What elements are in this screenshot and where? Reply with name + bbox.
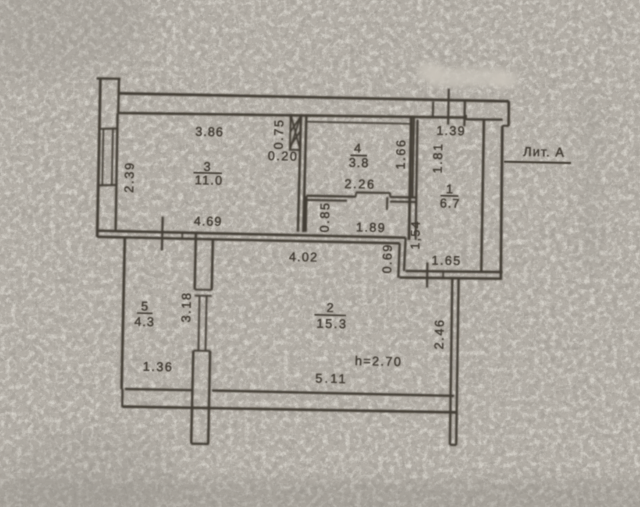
svg-text:15.3: 15.3 <box>316 317 347 332</box>
svg-text:1.81: 1.81 <box>431 142 446 173</box>
svg-text:2.39: 2.39 <box>122 161 137 193</box>
svg-text:3.18: 3.18 <box>179 291 194 322</box>
svg-text:h=2.70: h=2.70 <box>355 354 403 369</box>
svg-text:1: 1 <box>446 182 453 196</box>
svg-text:1.65: 1.65 <box>431 253 461 268</box>
svg-text:3: 3 <box>203 160 210 174</box>
svg-text:1.89: 1.89 <box>356 220 386 235</box>
svg-text:1.66: 1.66 <box>394 138 409 169</box>
svg-text:1.39: 1.39 <box>436 124 466 139</box>
svg-text:1,54: 1,54 <box>408 220 423 250</box>
svg-text:2.46: 2.46 <box>432 318 447 349</box>
svg-text:2: 2 <box>326 301 333 315</box>
svg-text:Лит. А: Лит. А <box>523 144 565 160</box>
svg-text:0.85: 0.85 <box>318 201 333 232</box>
svg-text:4.69: 4.69 <box>194 214 223 229</box>
svg-text:11.0: 11.0 <box>195 173 224 188</box>
svg-text:0.69: 0.69 <box>380 243 395 273</box>
svg-text:4: 4 <box>354 141 361 155</box>
svg-text:3.86: 3.86 <box>195 125 224 140</box>
svg-text:5.11: 5.11 <box>315 371 348 386</box>
svg-text:5: 5 <box>141 299 148 313</box>
svg-text:0.20: 0.20 <box>268 149 299 164</box>
svg-text:6.7: 6.7 <box>440 196 461 210</box>
svg-text:2.26: 2.26 <box>344 177 376 192</box>
svg-text:4.02: 4.02 <box>289 250 319 265</box>
svg-text:1.36: 1.36 <box>143 360 174 375</box>
svg-text:0.75: 0.75 <box>272 118 287 149</box>
svg-text:3.8: 3.8 <box>349 156 370 170</box>
svg-text:4.3: 4.3 <box>134 315 155 329</box>
